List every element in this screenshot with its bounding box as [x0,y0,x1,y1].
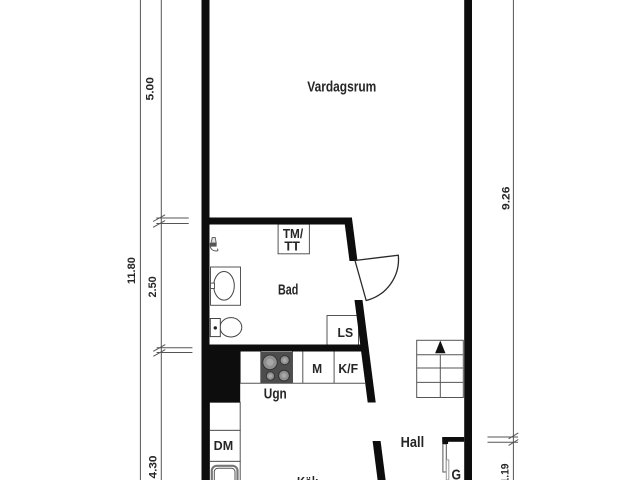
svg-text:TT: TT [284,239,300,254]
svg-text:4.30: 4.30 [148,456,160,479]
svg-text:K/F: K/F [338,361,358,376]
svg-text:DM: DM [214,438,234,453]
svg-text:LS: LS [338,325,354,340]
svg-text:Vardagsrum: Vardagsrum [307,79,376,96]
svg-text:Hall: Hall [401,434,425,451]
svg-text:Ugn: Ugn [264,386,287,403]
svg-text:G: G [452,467,462,481]
svg-text:5.00: 5.00 [145,77,157,100]
svg-text:Kök: Kök [297,474,318,480]
svg-text:9.26: 9.26 [500,187,512,210]
svg-text:M: M [312,361,322,376]
svg-text:2.50: 2.50 [147,276,159,297]
svg-text:1.19: 1.19 [500,464,512,481]
svg-text:11.80: 11.80 [126,257,138,284]
svg-text:Bad: Bad [278,281,298,298]
